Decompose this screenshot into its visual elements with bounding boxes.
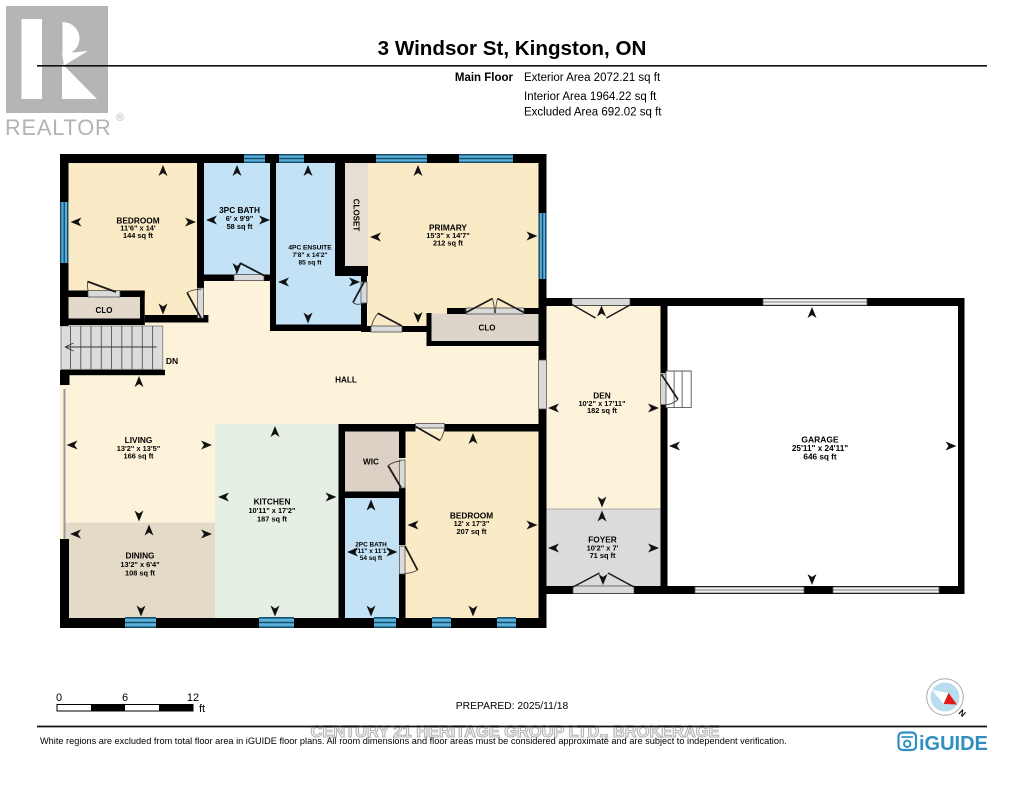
svg-text:Excluded Area 692.02 sq ft: Excluded Area 692.02 sq ft — [524, 107, 662, 119]
svg-text:PREPARED: 2025/11/18: PREPARED: 2025/11/18 — [456, 701, 569, 712]
svg-text:207 sq ft: 207 sq ft — [457, 527, 488, 536]
svg-text:DINING: DINING — [125, 551, 154, 561]
svg-text:0: 0 — [56, 692, 62, 704]
svg-text:DN: DN — [166, 356, 178, 366]
svg-text:REALTOR: REALTOR — [5, 115, 112, 140]
svg-text:CLO: CLO — [479, 324, 496, 333]
svg-text:166 sq ft: 166 sq ft — [124, 451, 155, 460]
svg-text:182 sq ft: 182 sq ft — [587, 406, 618, 415]
svg-text:Exterior Area 2072.21 sq ft: Exterior Area 2072.21 sq ft — [524, 72, 661, 84]
svg-text:3 Windsor St, Kingston, ON: 3 Windsor St, Kingston, ON — [378, 37, 647, 60]
svg-text:71 sq ft: 71 sq ft — [590, 551, 616, 560]
svg-text:187 sq ft: 187 sq ft — [257, 514, 288, 523]
svg-text:212 sq ft: 212 sq ft — [433, 238, 464, 247]
svg-text:KITCHEN: KITCHEN — [254, 497, 291, 507]
svg-text:CLOSET: CLOSET — [352, 199, 361, 232]
svg-text:7'8" x 14'2": 7'8" x 14'2" — [292, 252, 327, 259]
svg-text:85 sq ft: 85 sq ft — [298, 259, 322, 266]
svg-text:6: 6 — [122, 692, 128, 704]
svg-text:144 sq ft: 144 sq ft — [123, 231, 154, 240]
svg-text:54 sq ft: 54 sq ft — [360, 555, 383, 562]
svg-text:58 sq ft: 58 sq ft — [227, 222, 253, 231]
svg-text:Main Floor: Main Floor — [455, 72, 514, 84]
svg-text:GARAGE: GARAGE — [801, 434, 839, 444]
svg-text:12: 12 — [187, 692, 199, 704]
svg-text:HALL: HALL — [335, 376, 357, 385]
svg-text:4'11" x 11'1": 4'11" x 11'1" — [353, 548, 390, 555]
svg-text:iGUIDE: iGUIDE — [919, 733, 988, 755]
svg-text:White regions are excluded fro: White regions are excluded from total fl… — [40, 736, 787, 746]
svg-text:WIC: WIC — [363, 457, 379, 466]
svg-text:646 sq ft: 646 sq ft — [803, 453, 836, 462]
svg-text:Interior Area 1964.22 sq ft: Interior Area 1964.22 sq ft — [524, 91, 657, 103]
svg-text:108 sq ft: 108 sq ft — [125, 568, 156, 577]
svg-text:4PC ENSUITE: 4PC ENSUITE — [288, 245, 332, 252]
svg-text:®: ® — [116, 112, 124, 124]
svg-text:CLO: CLO — [96, 306, 113, 315]
svg-text:ft: ft — [199, 703, 205, 715]
